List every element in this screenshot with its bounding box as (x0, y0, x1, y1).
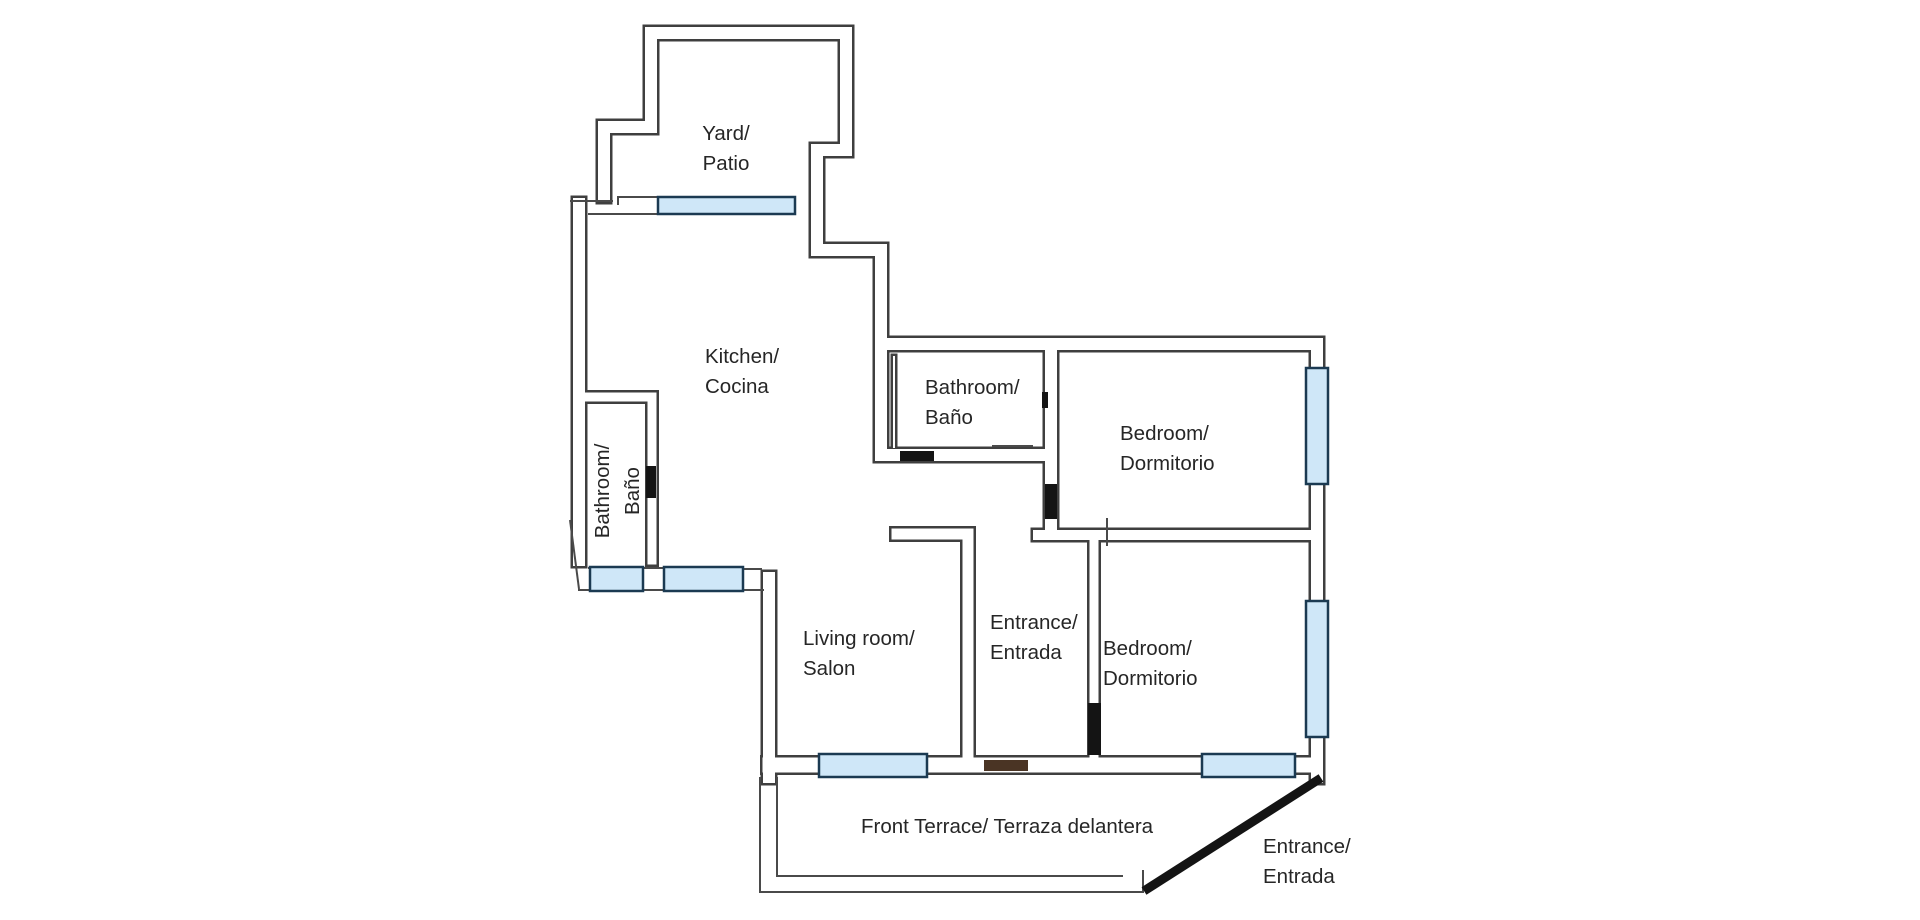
bedroom-2-door (1088, 703, 1101, 755)
yard-window (658, 197, 795, 214)
room-label-yard: Yard/Patio (702, 122, 750, 175)
yard-floor-ledge (618, 197, 658, 205)
kitchen-bottom-window (664, 567, 743, 591)
room-label-bathroom: Bathroom/Baño (925, 376, 1020, 429)
bedroom-2-bottom-window (1202, 754, 1295, 777)
room-label-bathroom-left: Bathroom/Baño (591, 443, 644, 538)
bedroom-1-door (1045, 484, 1057, 519)
bathroom-left-door (646, 466, 656, 498)
floor-plan-page: Yard/PatioKitchen/CocinaBathroom/BañoBat… (0, 0, 1920, 920)
front-door (984, 760, 1028, 771)
room-label-entrance-hall: Entrance/Entrada (990, 611, 1078, 664)
room-label-front-terrace: Front Terrace/ Terraza delantera (861, 815, 1154, 838)
bedroom-2-right-window (1306, 601, 1328, 737)
bedroom-1-right-window (1306, 368, 1328, 484)
bathroom-wall-tick (1042, 392, 1048, 408)
living-entrance-wall (897, 534, 968, 766)
floor-plan-canvas: Yard/PatioKitchen/CocinaBathroom/BañoBat… (0, 0, 1920, 920)
bathroom-left-window (590, 567, 643, 591)
living-room-window (819, 754, 927, 777)
bathroom-door (900, 451, 934, 461)
living-entrance-wall-core (897, 534, 968, 766)
room-label-living-room: Living room/Salon (803, 627, 915, 680)
room-label-bedroom-1: Bedroom/Dormitorio (1120, 422, 1215, 475)
room-label-kitchen: Kitchen/Cocina (705, 345, 779, 398)
room-label-entrance-outdoor: Entrance/Entrada (1263, 835, 1351, 888)
room-label-bedroom-2: Bedroom/Dormitorio (1103, 637, 1198, 690)
